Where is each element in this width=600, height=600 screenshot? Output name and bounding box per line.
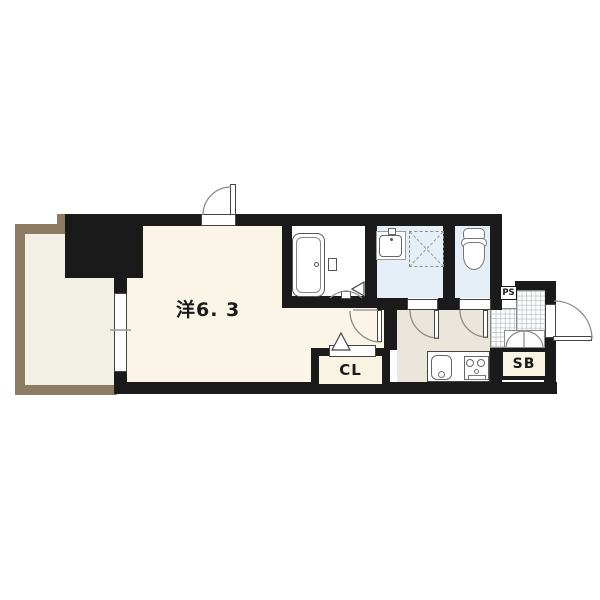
wash-basin-faucet — [388, 228, 396, 235]
shoe-cabinet-front — [504, 330, 545, 348]
closet-label: CL — [339, 361, 362, 379]
wall-left-upper — [114, 278, 127, 294]
front-door-leaf — [553, 336, 592, 341]
top-door-threshold — [201, 214, 236, 226]
stove-grill-knob — [474, 369, 479, 374]
washing-machine-space — [409, 231, 444, 267]
top-door-arc — [203, 187, 231, 215]
balcony-border-bottom — [15, 385, 117, 395]
wall-washroom-south-mid — [438, 298, 460, 310]
kitchen-sink-drain — [438, 371, 445, 378]
pipe-space-label: PS — [502, 288, 514, 298]
washroom-door-threshold — [407, 299, 438, 310]
stove-burner-right — [477, 359, 485, 367]
toilet-bowl — [463, 242, 485, 270]
wall-pillar — [65, 214, 143, 278]
front-door-arc — [554, 301, 592, 339]
wash-basin-drain — [390, 238, 393, 241]
floor-plan: CL SB PS — [0, 0, 600, 600]
toilet-door-leaf — [483, 310, 488, 338]
wall-room-hall — [384, 300, 397, 350]
wall-entry-right-upper — [545, 288, 556, 304]
bath-door-base — [341, 291, 351, 299]
main-room-label: 洋6. 3 — [176, 295, 240, 322]
shoe-box-label: SB — [513, 356, 536, 372]
pipe-space-box: PS — [500, 286, 517, 300]
bath-shelf — [328, 258, 337, 271]
window — [114, 293, 127, 372]
stove-burner-left — [466, 359, 474, 367]
wall-washroom-toilet — [443, 226, 455, 300]
closet-box: CL — [319, 356, 382, 384]
top-door-leaf — [230, 184, 236, 215]
closet-opening — [329, 345, 376, 357]
washroom-door-leaf — [434, 310, 439, 339]
front-door-jamb — [545, 304, 556, 338]
room-door-leaf — [377, 310, 382, 342]
balcony-border-left — [15, 224, 25, 395]
bathtub-knob — [314, 262, 319, 267]
toilet-door-threshold — [459, 299, 491, 310]
shoe-box: SB — [499, 348, 549, 380]
stove-grill — [468, 375, 486, 380]
